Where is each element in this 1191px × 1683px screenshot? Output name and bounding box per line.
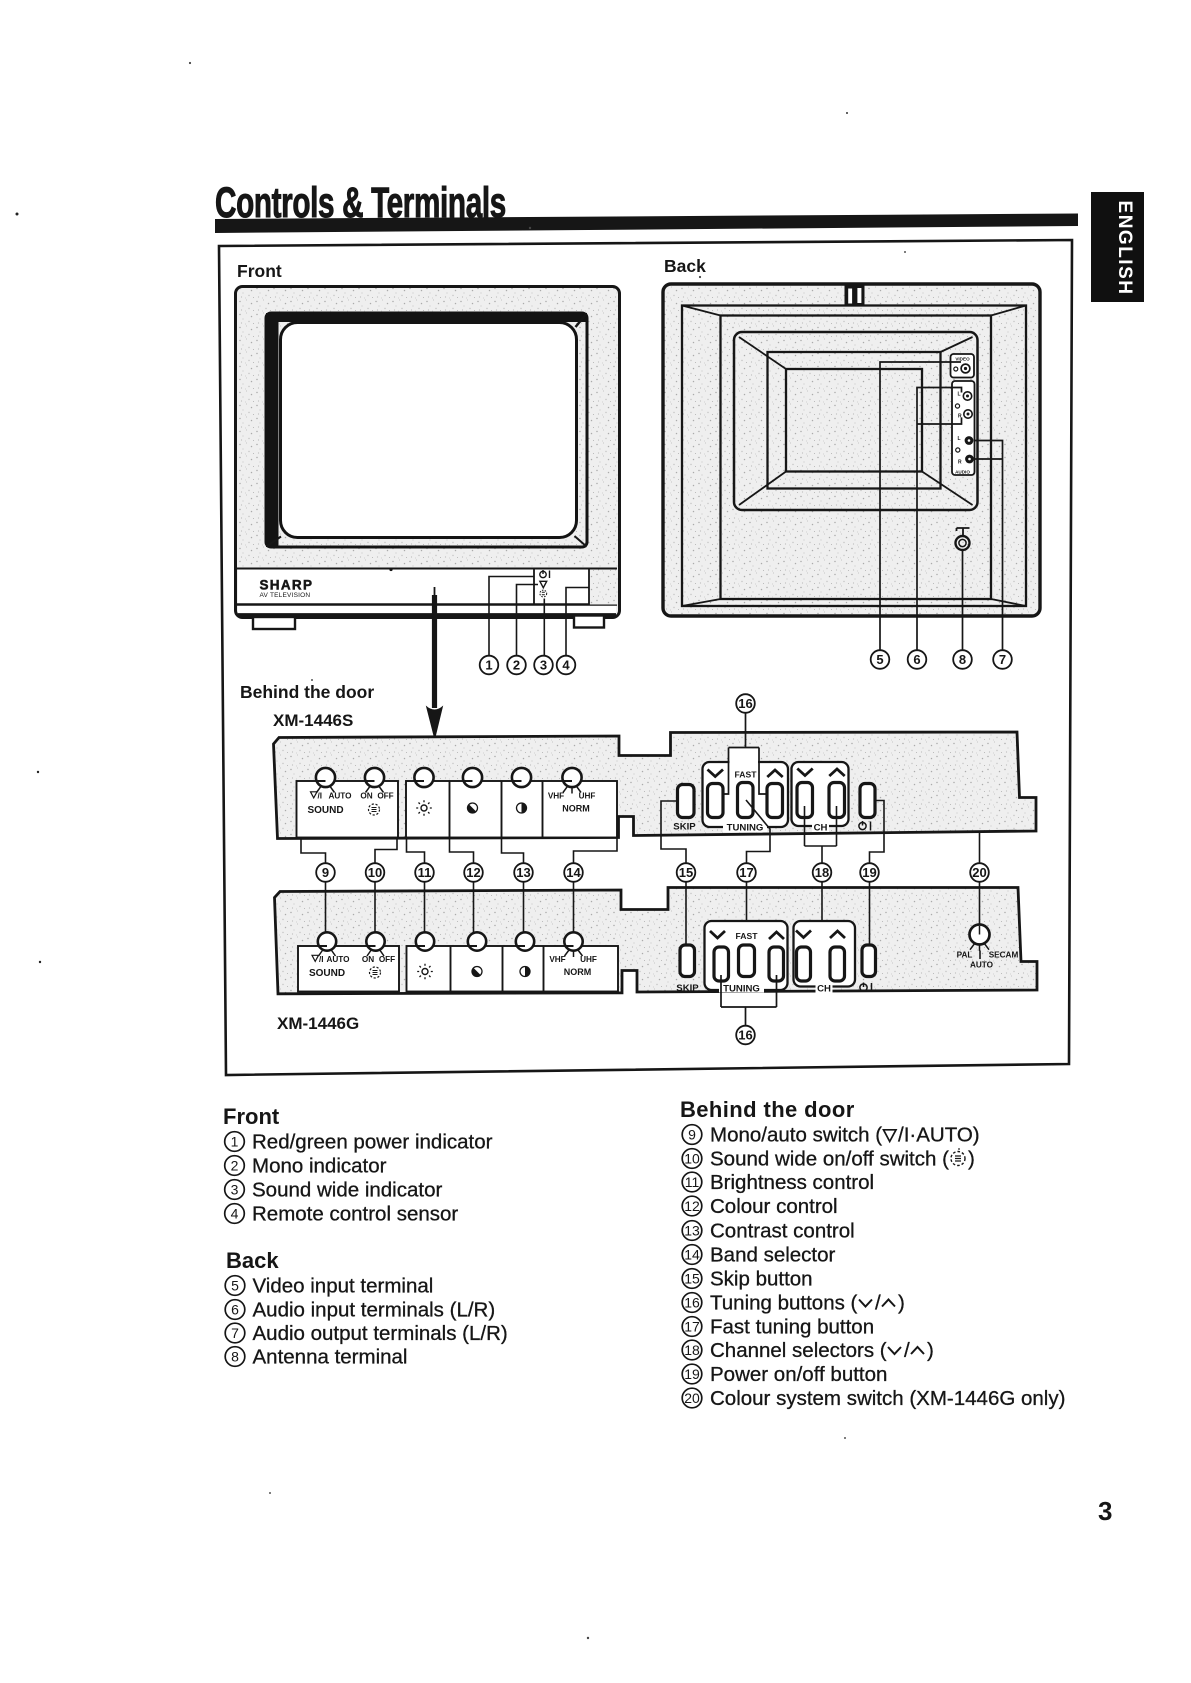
svg-text:NORM: NORM — [564, 967, 592, 977]
svg-text:17: 17 — [684, 1318, 700, 1334]
svg-text:): ) — [968, 1148, 975, 1171]
svg-text:UHF: UHF — [580, 955, 597, 964]
svg-text:ENGLISH: ENGLISH — [1114, 201, 1135, 296]
svg-text:VHF: VHF — [548, 792, 564, 801]
svg-text:SOUND: SOUND — [309, 968, 345, 979]
svg-text:Behind the door: Behind the door — [240, 682, 374, 702]
svg-text:1: 1 — [231, 1133, 239, 1149]
svg-text:CH: CH — [814, 823, 828, 834]
svg-text:UHF: UHF — [579, 792, 596, 801]
svg-text:Red/green power indicator: Red/green power indicator — [252, 1131, 493, 1154]
svg-text:SOUND: SOUND — [307, 805, 343, 816]
svg-text:5: 5 — [231, 1277, 239, 1293]
svg-text:16: 16 — [684, 1294, 700, 1310]
svg-text:7: 7 — [231, 1325, 239, 1341]
svg-text:17: 17 — [739, 865, 753, 880]
svg-text:3: 3 — [540, 658, 547, 673]
svg-text:8: 8 — [959, 652, 966, 667]
svg-text:/: / — [875, 1292, 881, 1315]
svg-text:FAST: FAST — [735, 770, 758, 780]
svg-text:12: 12 — [466, 865, 480, 880]
svg-text:ON: ON — [360, 792, 372, 801]
svg-text:Channel selectors (: Channel selectors ( — [710, 1339, 887, 1362]
svg-text:Tuning buttons (: Tuning buttons ( — [710, 1292, 858, 1315]
svg-text:Fast tuning button: Fast tuning button — [710, 1316, 874, 1339]
svg-text:Mono/auto switch (: Mono/auto switch ( — [710, 1124, 882, 1147]
svg-text:19: 19 — [862, 865, 876, 880]
svg-text:12: 12 — [684, 1198, 700, 1214]
svg-text:Band selector: Band selector — [710, 1244, 836, 1267]
svg-text:20: 20 — [684, 1390, 700, 1406]
svg-text:8: 8 — [231, 1348, 239, 1364]
svg-text:AUDIO: AUDIO — [955, 470, 970, 475]
svg-text:4: 4 — [231, 1205, 239, 1221]
svg-text:Sound wide indicator: Sound wide indicator — [252, 1179, 442, 1202]
svg-text:18: 18 — [684, 1342, 700, 1358]
svg-text:2: 2 — [231, 1157, 239, 1173]
svg-text:10: 10 — [368, 865, 382, 880]
svg-text:XM-1446G: XM-1446G — [277, 1014, 359, 1033]
svg-text:Power on/off button: Power on/off button — [710, 1363, 887, 1386]
svg-text:13: 13 — [516, 865, 530, 880]
svg-text:Video input terminal: Video input terminal — [253, 1275, 434, 1298]
svg-text:3: 3 — [231, 1181, 239, 1197]
svg-text:2: 2 — [513, 658, 520, 673]
svg-text:VIDEO: VIDEO — [955, 357, 970, 362]
svg-text:Front: Front — [223, 1104, 280, 1129]
svg-text:5: 5 — [876, 652, 883, 667]
svg-text:Colour control: Colour control — [710, 1195, 838, 1218]
svg-text:NORM: NORM — [562, 804, 590, 814]
svg-text:Behind the door: Behind the door — [680, 1097, 855, 1122]
svg-text:Audio output terminals (L/R): Audio output terminals (L/R) — [253, 1322, 508, 1345]
svg-text:SKIP: SKIP — [673, 822, 696, 833]
svg-text:Remote control sensor: Remote control sensor — [252, 1203, 458, 1226]
svg-text:Audio input terminals (L/R): Audio input terminals (L/R) — [253, 1299, 496, 1322]
svg-text:): ) — [898, 1292, 905, 1315]
svg-text:/I: /I — [319, 955, 324, 964]
svg-text:TUNING: TUNING — [727, 823, 764, 834]
svg-text:11: 11 — [685, 1174, 700, 1190]
svg-text:Sound wide on/off switch (: Sound wide on/off switch ( — [710, 1148, 949, 1171]
svg-text:3: 3 — [1098, 1496, 1112, 1526]
svg-text:15: 15 — [679, 865, 693, 880]
svg-text:CH: CH — [817, 984, 831, 995]
svg-text:AUTO: AUTO — [328, 792, 352, 801]
svg-text:9: 9 — [322, 865, 329, 880]
svg-text:/: / — [904, 1339, 910, 1362]
svg-text:Back: Back — [664, 256, 706, 276]
svg-text:10: 10 — [684, 1150, 700, 1166]
svg-text:1: 1 — [485, 658, 492, 673]
svg-text:15: 15 — [684, 1270, 700, 1286]
svg-text:13: 13 — [684, 1222, 700, 1238]
svg-text:14: 14 — [684, 1246, 700, 1262]
svg-text:PAL: PAL — [957, 951, 973, 960]
svg-text:Front: Front — [237, 261, 282, 281]
svg-text:20: 20 — [972, 865, 986, 880]
svg-text:19: 19 — [684, 1366, 700, 1382]
svg-text:ON: ON — [362, 955, 374, 964]
svg-text:11: 11 — [418, 865, 432, 880]
svg-text:Mono indicator: Mono indicator — [252, 1155, 387, 1178]
svg-text:14: 14 — [566, 865, 581, 880]
svg-text:AUTO: AUTO — [970, 961, 994, 970]
svg-text:SKIP: SKIP — [676, 983, 699, 994]
svg-text:AUTO: AUTO — [326, 955, 350, 964]
svg-text:4: 4 — [562, 658, 570, 673]
svg-text:16: 16 — [738, 696, 752, 711]
svg-text:OFF: OFF — [379, 955, 395, 964]
svg-text:/I: /I — [318, 792, 323, 801]
svg-text:6: 6 — [913, 652, 920, 667]
svg-text:AV TELEVISION: AV TELEVISION — [260, 592, 311, 599]
svg-text:SECAM: SECAM — [989, 951, 1019, 960]
svg-text:/I·AUTO): /I·AUTO) — [898, 1124, 980, 1147]
svg-text:OFF: OFF — [377, 792, 393, 801]
svg-text:18: 18 — [815, 865, 829, 880]
svg-text:Contrast control: Contrast control — [710, 1220, 855, 1243]
svg-text:6: 6 — [231, 1301, 239, 1317]
svg-text:L: L — [958, 436, 961, 442]
svg-text:VHF: VHF — [549, 955, 565, 964]
svg-text:TUNING: TUNING — [723, 984, 760, 995]
svg-text:FAST: FAST — [736, 931, 759, 941]
svg-text:Colour system switch (XM-1446G: Colour system switch (XM-1446G only) — [710, 1387, 1065, 1410]
svg-text:Antenna terminal: Antenna terminal — [253, 1346, 408, 1369]
svg-text:): ) — [927, 1339, 934, 1362]
svg-text:XM-1446S: XM-1446S — [273, 711, 353, 730]
svg-text:SHARP: SHARP — [260, 578, 314, 593]
svg-text:7: 7 — [999, 652, 1006, 667]
svg-text:16: 16 — [738, 1028, 752, 1043]
svg-text:Back: Back — [226, 1248, 279, 1273]
svg-text:R: R — [958, 460, 962, 466]
svg-text:Skip button: Skip button — [710, 1268, 813, 1291]
svg-text:9: 9 — [688, 1126, 696, 1142]
svg-text:L: L — [958, 392, 961, 398]
svg-text:Brightness control: Brightness control — [710, 1171, 874, 1194]
